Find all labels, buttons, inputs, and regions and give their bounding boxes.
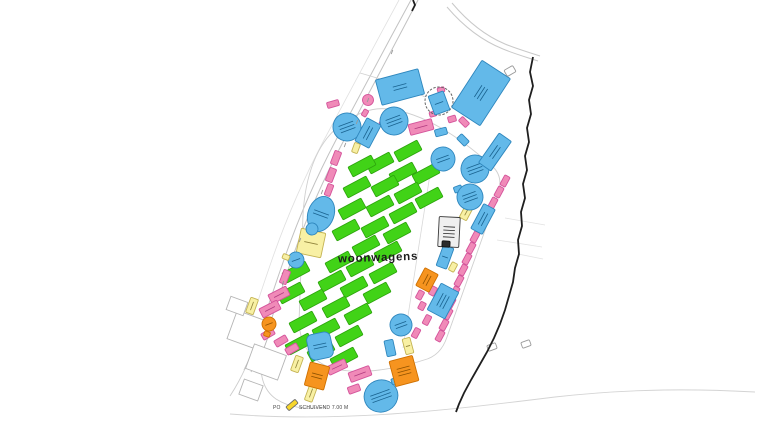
site-plan-map: woonwagens PO SCHUIVEND 7.00 M — [0, 0, 768, 432]
market-stall — [454, 275, 464, 288]
gate-rect — [521, 340, 532, 349]
service-block — [246, 297, 259, 315]
market-stall — [422, 314, 432, 326]
market-stall — [466, 242, 476, 255]
service-block — [448, 262, 458, 273]
market-stall — [324, 183, 334, 196]
gate-rect — [504, 65, 516, 76]
market-stall — [500, 175, 510, 188]
service-block — [351, 142, 360, 153]
road-tick — [344, 143, 346, 147]
road-line — [518, 254, 543, 259]
ride-block — [457, 134, 470, 147]
market-stall — [435, 330, 445, 343]
market-stall — [439, 319, 449, 332]
market-stall — [411, 327, 421, 339]
ride-block — [306, 331, 335, 361]
market-stall — [415, 290, 425, 301]
market-stall — [466, 242, 476, 255]
market-stall — [279, 269, 291, 285]
market-stall — [439, 319, 449, 332]
gate-label: SCHUIVEND 7.00 M — [299, 405, 348, 411]
gate-marker — [286, 399, 298, 411]
ride-block — [306, 331, 335, 361]
building-outline — [246, 344, 287, 380]
ride-block — [434, 127, 447, 137]
ride-block — [457, 134, 470, 147]
market-stall — [422, 314, 432, 326]
market-stall — [347, 384, 361, 395]
market-stall — [408, 119, 434, 136]
service-block — [448, 262, 458, 273]
building-outline — [239, 379, 263, 401]
market-stall — [411, 327, 421, 339]
attraction-block — [304, 362, 330, 390]
service-block — [351, 142, 360, 153]
market-stall — [417, 301, 426, 311]
site-plan: woonwagens PO SCHUIVEND 7.00 M — [0, 0, 768, 432]
ride-block — [479, 133, 512, 171]
market-stall — [348, 366, 372, 383]
market-stall — [326, 99, 339, 108]
service-block — [402, 337, 414, 355]
market-stall — [361, 109, 369, 118]
market-stall — [361, 109, 369, 118]
ride-block — [451, 60, 510, 125]
market-stall — [325, 167, 337, 183]
road-tick — [321, 190, 323, 194]
gate-rect — [521, 340, 532, 349]
market-stall — [458, 264, 468, 277]
ride-block — [434, 127, 447, 137]
market-stall — [462, 253, 472, 266]
road-line — [505, 218, 545, 225]
road-line — [447, 7, 538, 61]
market-stall — [458, 264, 468, 277]
service-block — [282, 253, 290, 260]
ride-block — [375, 69, 424, 106]
market-stall — [415, 290, 425, 301]
market-stall — [500, 175, 510, 188]
market-stall — [330, 150, 342, 166]
gate-prefix-label: PO — [273, 405, 281, 411]
gate-marker — [286, 399, 298, 411]
buildings-layer — [226, 296, 286, 401]
woonwagens-label: woonwagens — [337, 251, 419, 266]
caravan-block — [343, 176, 371, 198]
market-stall — [454, 275, 464, 288]
attraction-block — [304, 362, 330, 390]
market-stall — [494, 186, 504, 199]
road-line — [452, 3, 540, 56]
market-stall — [417, 301, 426, 311]
service-block — [282, 253, 290, 260]
facility-detail — [442, 241, 450, 247]
ride-block — [384, 339, 396, 357]
service-block — [291, 355, 304, 373]
market-stall — [347, 384, 361, 395]
road-line — [497, 240, 542, 247]
ride-block — [384, 339, 396, 357]
market-stall — [494, 186, 504, 199]
market-stall — [462, 253, 472, 266]
caravan-block — [394, 140, 422, 162]
market-stall — [259, 300, 281, 318]
ride-block — [479, 133, 512, 171]
market-stall — [279, 269, 291, 285]
building-outline — [226, 296, 248, 315]
ride-circle — [387, 311, 415, 339]
facility-detail — [442, 241, 450, 247]
ride-block — [375, 69, 424, 106]
market-stall — [326, 99, 339, 108]
market-stall — [324, 183, 334, 196]
market-stall — [447, 115, 456, 123]
gate-rect — [504, 65, 516, 76]
market-stall — [447, 115, 456, 123]
caravan-block — [332, 219, 360, 241]
market-stall — [330, 150, 342, 166]
market-stall — [435, 330, 445, 343]
caravan-block — [338, 198, 366, 220]
market-stall — [325, 167, 337, 183]
ride-circle — [387, 311, 415, 339]
site-boundary-line — [412, 0, 415, 11]
